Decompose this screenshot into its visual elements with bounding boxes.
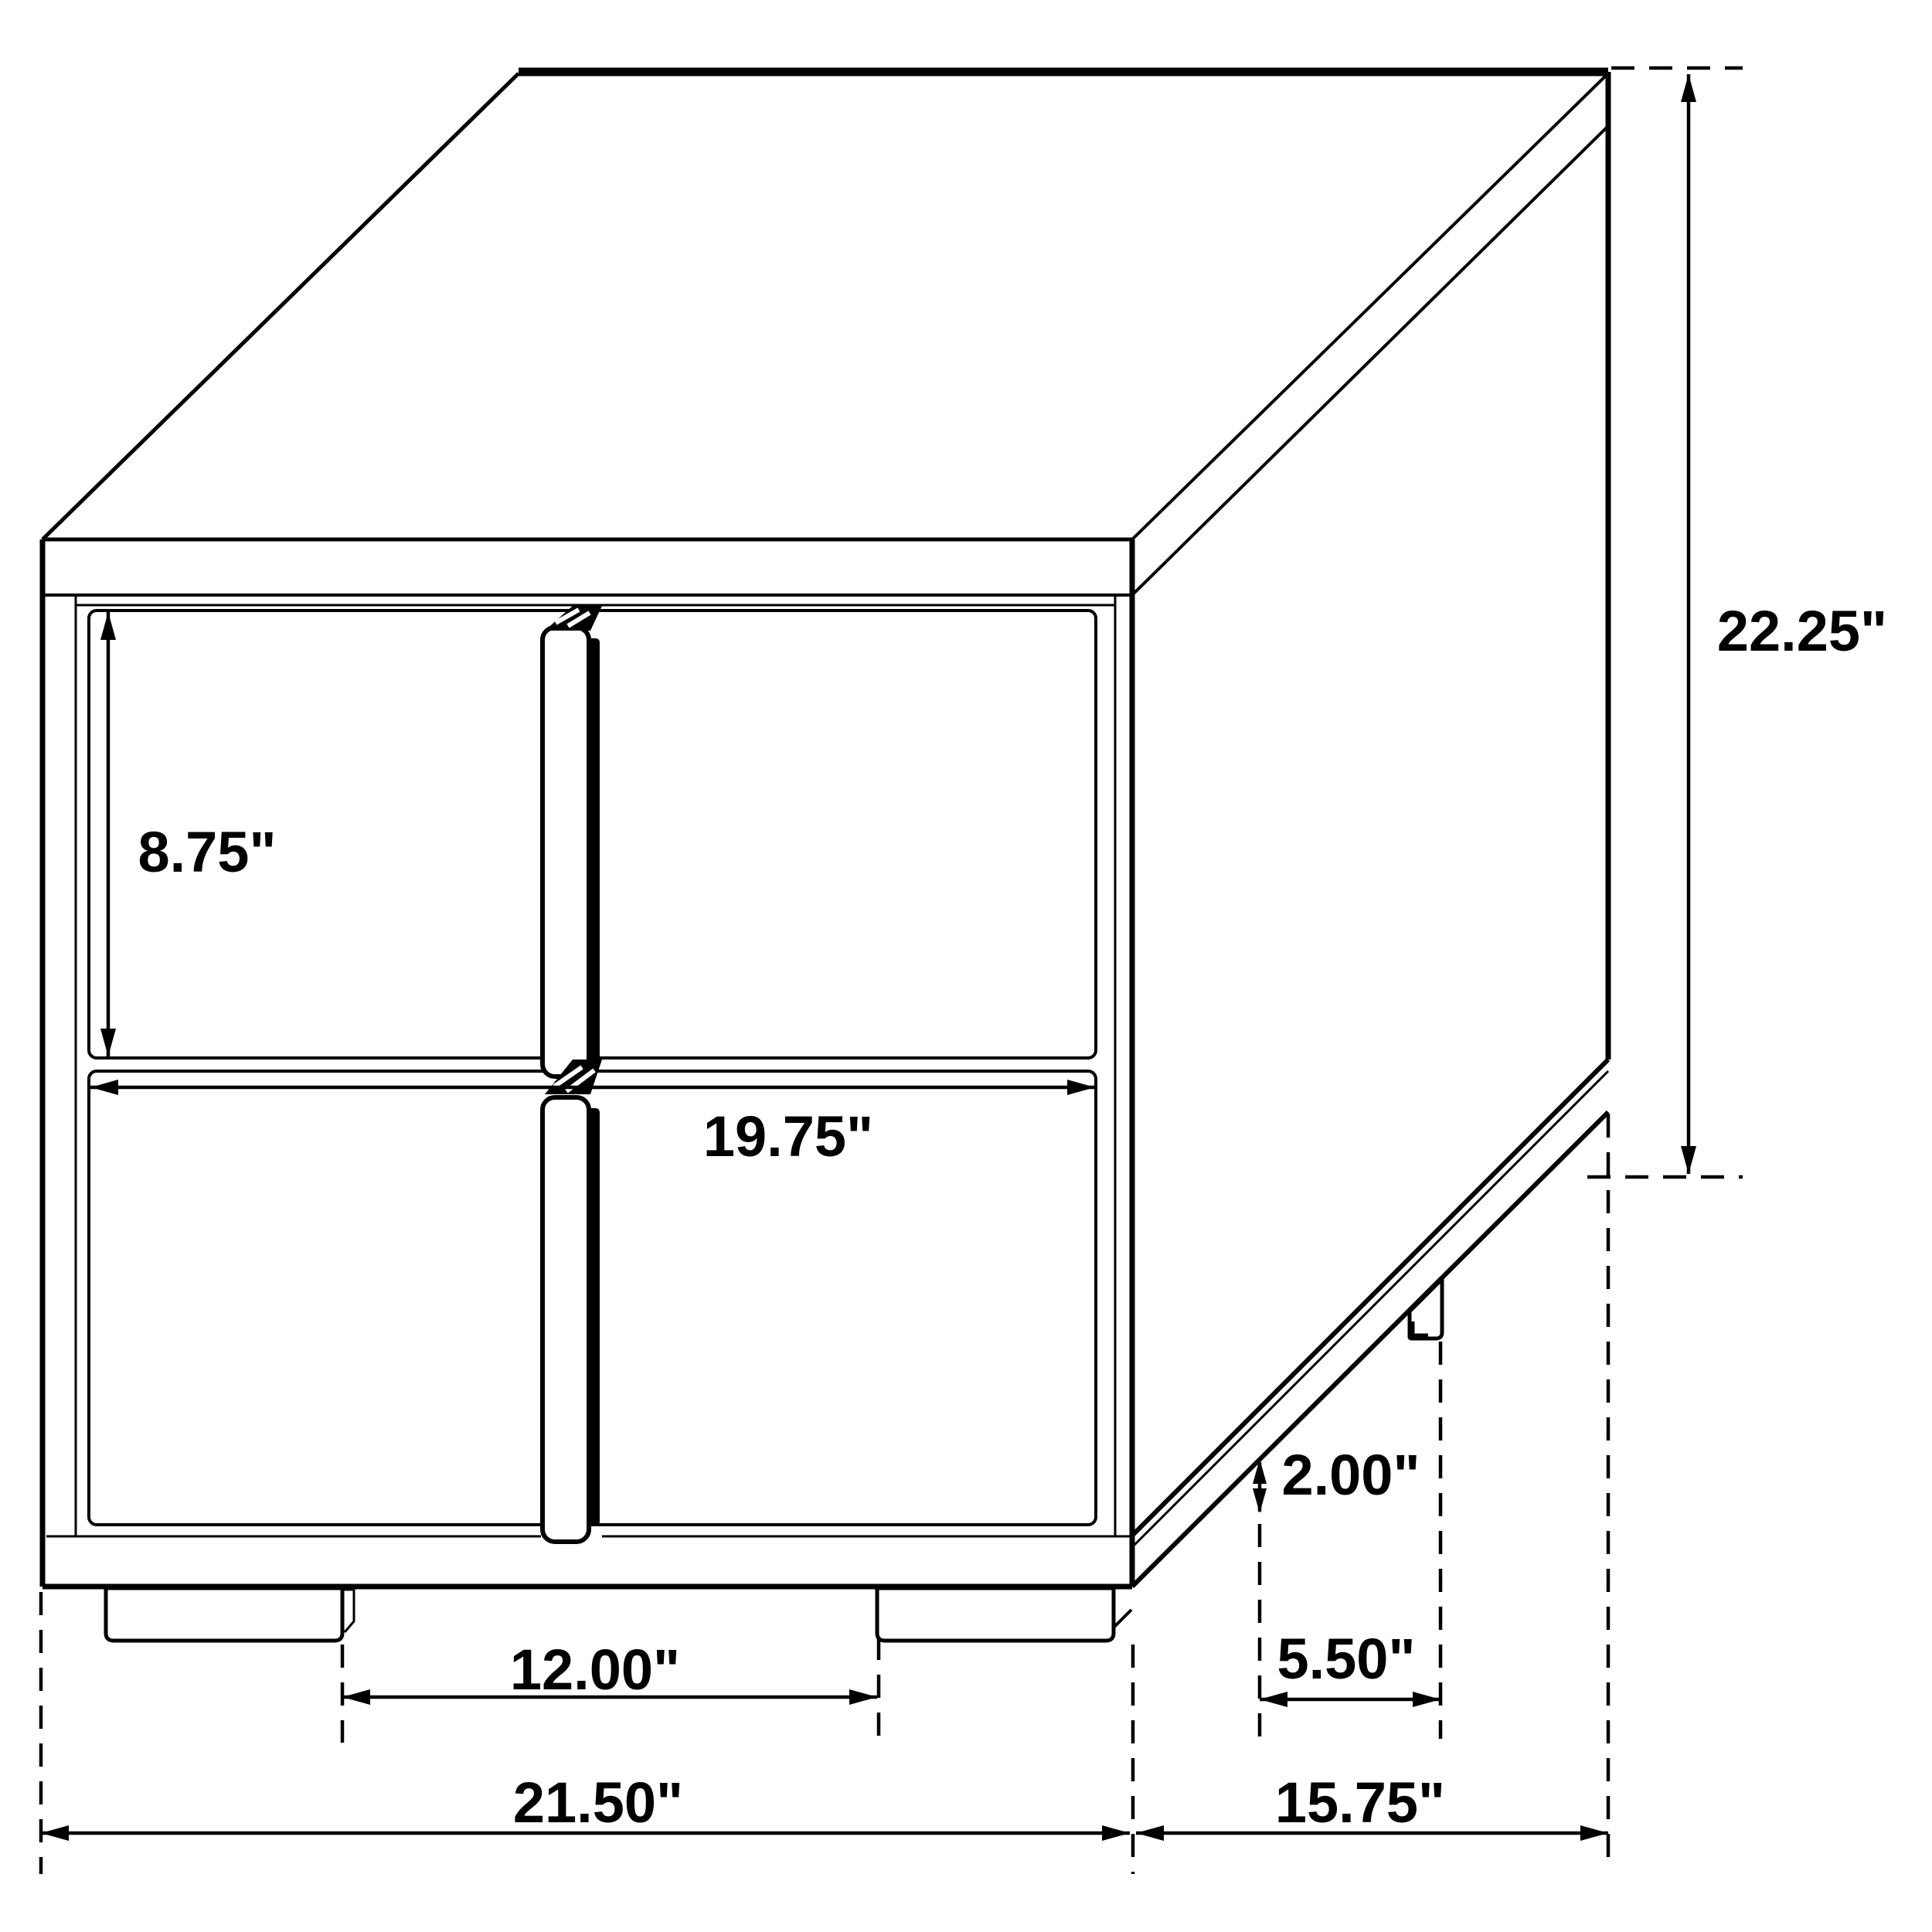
arrowhead-down — [1253, 1488, 1267, 1513]
top-right-fold-edge — [1132, 73, 1608, 539]
side-rail-bottom-edge — [1132, 1112, 1608, 1587]
arrowhead-left — [1260, 1692, 1287, 1707]
arrowhead-left — [1136, 1825, 1164, 1841]
dim-front-leg-gap: 12.00" — [342, 1638, 877, 1705]
arrowhead-right — [1580, 1825, 1608, 1841]
arrowhead-left — [41, 1825, 69, 1841]
dim-label-side-leg-gap: 5.50" — [1277, 1627, 1415, 1691]
arrowhead-down — [1681, 1146, 1696, 1174]
arrowhead-left — [342, 1689, 370, 1705]
dim-label-overall-depth: 15.75" — [1275, 1770, 1445, 1835]
arrowhead-right — [849, 1689, 877, 1705]
front-left-leg — [106, 1588, 342, 1641]
dim-overall-depth: 15.75" — [1136, 1770, 1608, 1841]
dim-label-overall-height: 22.25" — [1717, 599, 1887, 663]
dim-label-leg-height: 2.00" — [1281, 1443, 1420, 1507]
arrowhead-up — [1681, 74, 1696, 102]
dim-leg-height: 2.00" — [1253, 1443, 1420, 1513]
nightstand-body — [43, 72, 1608, 1641]
top-slab-side-bottom-edge — [1132, 126, 1608, 595]
dim-label-drawer-width: 19.75" — [703, 1104, 873, 1168]
dimension-diagram: 22.25" 8.75" 19.75" 2.00" 12 — [0, 0, 1932, 1932]
dim-label-drawer-front-height: 8.75" — [138, 820, 276, 884]
dim-overall-height: 22.25" — [1681, 74, 1887, 1174]
front-right-leg — [877, 1588, 1114, 1641]
front-right-leg-side-bevel — [1114, 1610, 1131, 1628]
arrowhead-right — [1102, 1825, 1130, 1841]
lower-handle-shadow-edge — [587, 1108, 600, 1526]
dim-side-leg-gap: 5.50" — [1260, 1627, 1440, 1707]
top-left-slant-edge — [43, 73, 519, 539]
upper-drawer-handle — [543, 628, 589, 1077]
dim-overall-width: 21.50" — [41, 1770, 1130, 1841]
top-panel — [43, 72, 1608, 595]
dim-label-front-leg-gap: 12.00" — [510, 1638, 680, 1702]
side-bottom-rail — [1132, 1060, 1608, 1587]
upper-handle-shadow-edge — [587, 638, 600, 1068]
dim-label-overall-width: 21.50" — [513, 1770, 683, 1835]
lower-drawer-handle — [543, 1097, 589, 1542]
drawer-handles — [543, 606, 602, 1542]
nightstand-drawing-svg: 22.25" 8.75" 19.75" 2.00" 12 — [0, 0, 1932, 1932]
arrowhead-right — [1413, 1692, 1440, 1707]
